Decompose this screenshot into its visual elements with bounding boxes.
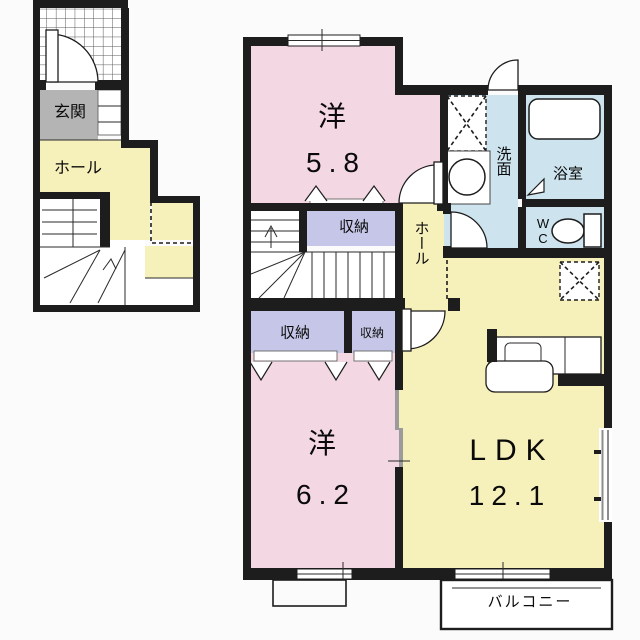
shoe-cabinet-icon — [98, 90, 121, 135]
room-6-2-area: 6.2 — [296, 481, 356, 509]
balcony-label: バルコニー — [488, 595, 573, 610]
bathroom-label: 浴室 — [553, 167, 583, 182]
washbasin-icon — [446, 151, 490, 204]
room-6-2-label: 洋 — [308, 430, 336, 458]
entrance-label: 玄関 — [54, 105, 86, 121]
storage-left-label: 収納 — [280, 326, 310, 341]
room-5-8-area: 5.8 — [306, 149, 366, 177]
room-6-2-floor — [247, 353, 399, 568]
washroom-label: 洗面 — [496, 146, 511, 176]
washing-machine-icon — [447, 96, 486, 151]
eave-outline — [273, 580, 346, 606]
wc-label: WC — [537, 216, 550, 246]
ldk-area: 12.1 — [469, 482, 552, 510]
floor-plan: 洋 5.8 収納 ホール 洗面 浴室 WC 収納 収納 洋 6.2 LDK 12… — [0, 0, 640, 640]
first-floor-plan — [33, 0, 200, 312]
ldk-label: LDK — [469, 436, 554, 466]
floor-plan-drawing — [0, 0, 640, 640]
storage-top-label: 収納 — [339, 220, 369, 235]
room-5-8-label: 洋 — [318, 103, 346, 131]
ldk-floor — [448, 258, 604, 568]
bathtub-icon — [529, 99, 600, 139]
hall-label: ホール — [414, 221, 429, 266]
first-floor-hall-label: ホール — [54, 161, 102, 177]
washroom-exterior-door-arc — [488, 60, 518, 90]
storage-right-label: 収納 — [360, 327, 384, 339]
refrigerator-icon — [560, 262, 599, 300]
